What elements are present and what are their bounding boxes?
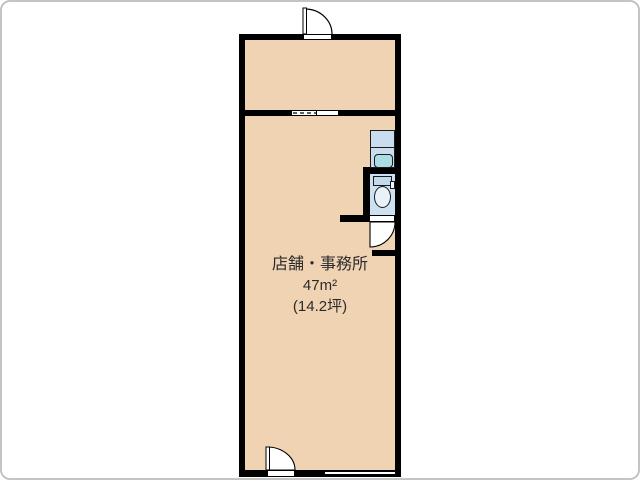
entrance-door-sill xyxy=(267,470,295,477)
room-area-sqm-label: 47m² xyxy=(245,275,395,297)
window-icon xyxy=(325,471,395,476)
room-label-block: 店舗・事務所 47m² (14.2坪) xyxy=(245,255,395,317)
wall-toilet-left xyxy=(363,167,370,222)
window-midline xyxy=(325,474,395,475)
wash-basin-icon xyxy=(370,130,395,168)
toilet-bowl-icon xyxy=(374,186,391,208)
floorplan-canvas: 店舗・事務所 47m² (14.2坪) xyxy=(0,0,640,480)
room-name-label: 店舗・事務所 xyxy=(245,255,395,275)
room-area-tsubo-label: (14.2坪) xyxy=(245,297,395,317)
wall-toilet-stub xyxy=(340,215,370,222)
toilet-flush-handle-icon xyxy=(390,181,395,189)
vanity-counter-line xyxy=(371,147,394,148)
upper-room-floor xyxy=(245,40,395,110)
top-door-leaf-icon xyxy=(303,8,307,34)
sink-bowl-icon xyxy=(374,154,393,168)
sliding-door-panel-icon xyxy=(316,110,339,116)
toilet-door-sill xyxy=(369,215,395,222)
top-door-arc-icon xyxy=(306,9,332,34)
top-door-sill xyxy=(303,34,332,40)
